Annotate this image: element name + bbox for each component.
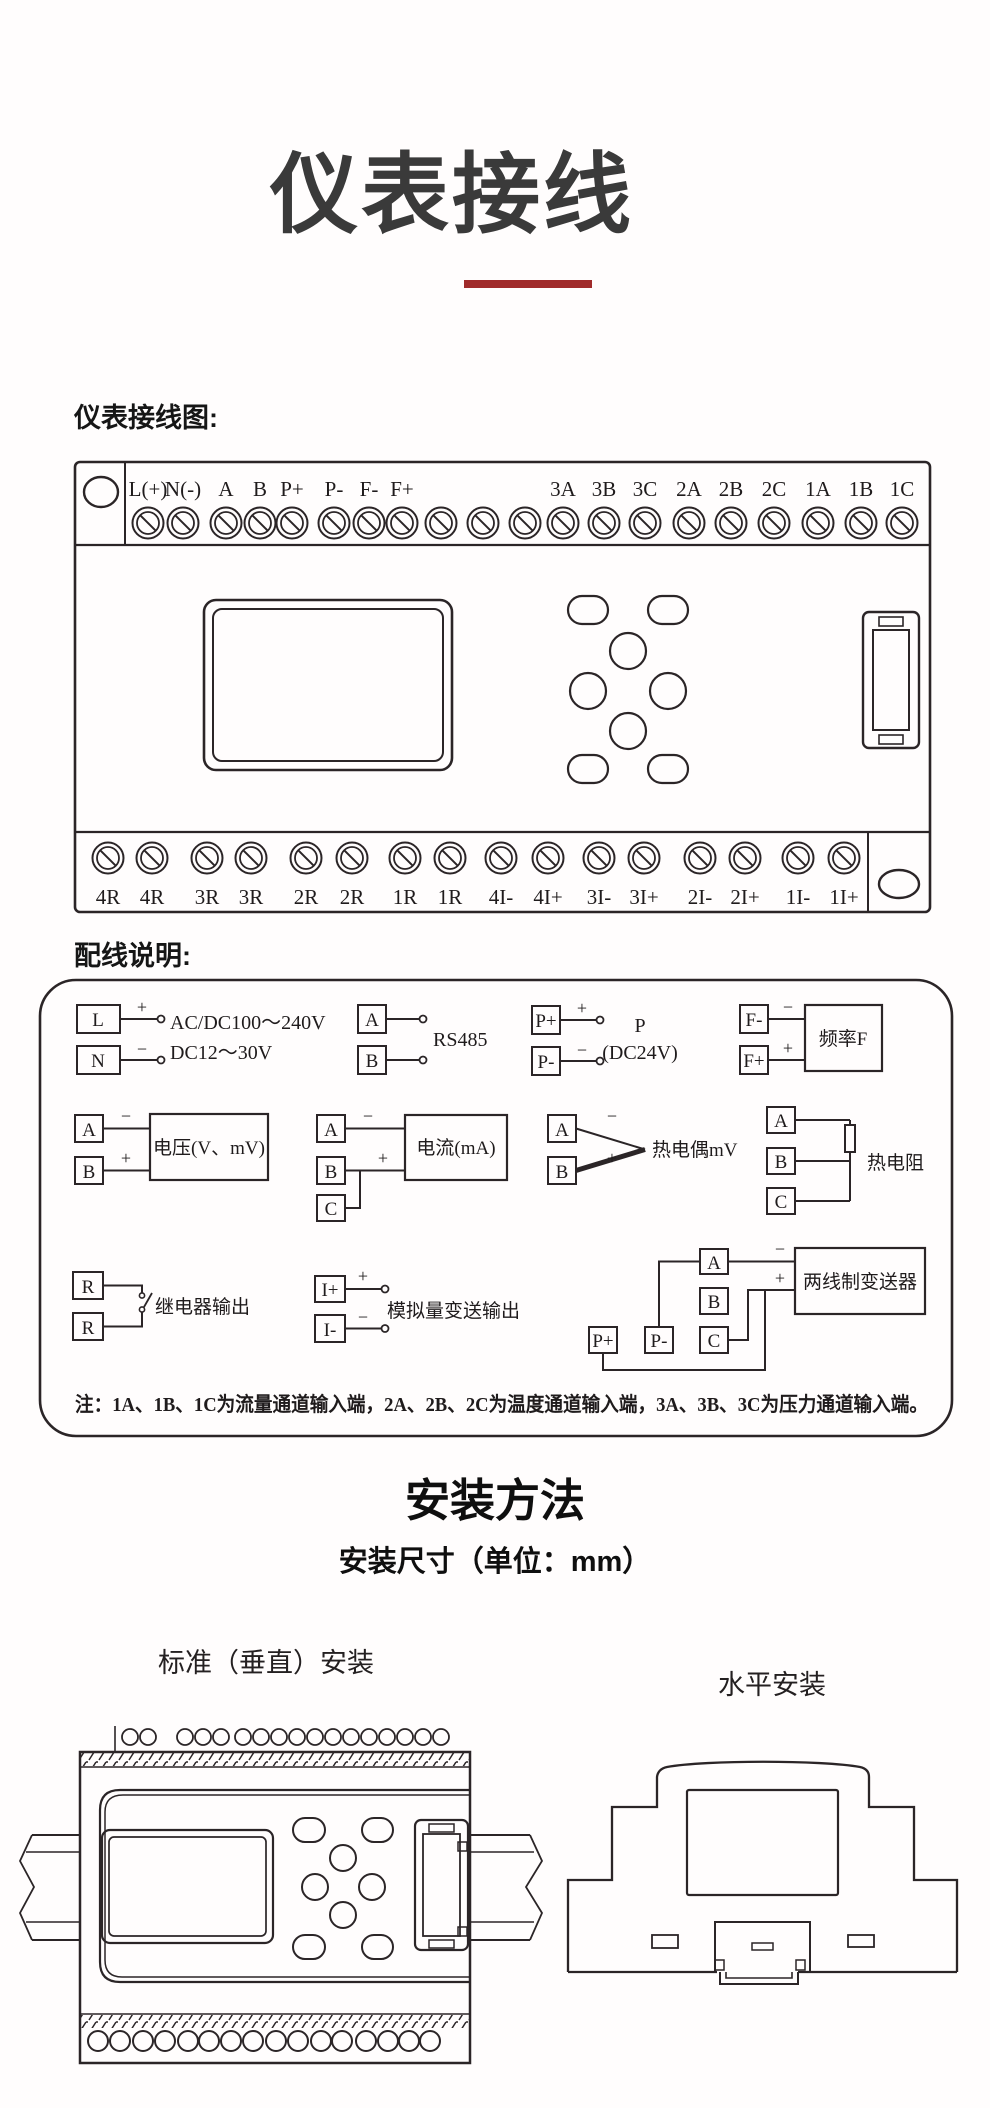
terminal-hole bbox=[133, 2031, 153, 2051]
minus-sign: − bbox=[783, 997, 793, 1017]
installation-subtitle: 安装尺寸（单位：mm） bbox=[0, 1538, 990, 1580]
wiring-instructions-panel: L N + − AC/DC100～240V DC12～30V A B RS485… bbox=[36, 976, 958, 1444]
terminal-box-label: A bbox=[707, 1253, 721, 1274]
screw-terminal bbox=[548, 508, 579, 539]
terminal-label: 4I- bbox=[489, 885, 514, 909]
terminal-box-label: C bbox=[775, 1192, 788, 1213]
screw-terminal bbox=[846, 508, 877, 539]
terminal-hole bbox=[253, 1729, 269, 1745]
terminal-box-label: B bbox=[83, 1162, 96, 1183]
terminal-hole bbox=[88, 2031, 108, 2051]
screw-terminal bbox=[803, 508, 834, 539]
red-divider bbox=[464, 280, 592, 288]
vent-strip-bottom bbox=[81, 2015, 469, 2028]
top-terminal-holes bbox=[122, 1729, 449, 1745]
horizontal-install-drawing bbox=[560, 1755, 970, 1995]
screw-terminal bbox=[211, 508, 242, 539]
terminal-box-label: P- bbox=[538, 1052, 555, 1073]
plus-sign: + bbox=[121, 1148, 131, 1168]
key-up bbox=[610, 633, 646, 669]
vertical-install-label: 标准（垂直）安装 bbox=[158, 1641, 374, 1680]
terminal-hole bbox=[122, 1729, 138, 1745]
terminal-label: F- bbox=[360, 477, 379, 501]
rail-break-symbol bbox=[20, 1835, 34, 1940]
terminal-box-label: A bbox=[365, 1010, 379, 1031]
key-left bbox=[570, 673, 606, 709]
screw-terminal bbox=[435, 843, 466, 874]
terminal-hole bbox=[177, 1729, 193, 1745]
terminal-hole bbox=[288, 2031, 308, 2051]
rail-break-symbol bbox=[526, 1835, 542, 1940]
screw-terminal bbox=[236, 843, 267, 874]
screw-terminal bbox=[390, 843, 421, 874]
terminal-hole bbox=[199, 2031, 219, 2051]
terminal-box-label: B bbox=[708, 1292, 721, 1313]
rs485-wiring-diagram: A B RS485 bbox=[358, 1005, 487, 1074]
screw-terminal bbox=[319, 508, 350, 539]
minus-sign: − bbox=[577, 1040, 587, 1060]
terminal-hole bbox=[155, 2031, 175, 2051]
terminal-hole bbox=[289, 1729, 305, 1745]
side-connector bbox=[415, 1820, 468, 1950]
screw-terminal bbox=[337, 843, 368, 874]
terminal-label: P- bbox=[325, 477, 344, 501]
sensor-supply-wiring-diagram: P+ P- + − P (DC24V) bbox=[532, 998, 678, 1075]
terminal-box-label: C bbox=[325, 1199, 338, 1220]
terminal-label: F+ bbox=[390, 477, 414, 501]
side-connector bbox=[863, 612, 919, 748]
screw-terminal bbox=[887, 508, 918, 539]
diagram-caption: P bbox=[634, 1015, 645, 1037]
plus-sign: + bbox=[775, 1268, 785, 1288]
screw-terminal bbox=[192, 843, 223, 874]
screw-terminal bbox=[589, 508, 620, 539]
bottom-terminal-holes bbox=[88, 2031, 440, 2051]
terminal-box-label: I- bbox=[324, 1320, 337, 1341]
terminal-hole bbox=[399, 2031, 419, 2051]
bottom-terminal-row: 4R4R3R3R2R2R1R1R4I-4I+3I-3I+2I-2I+1I-1I+ bbox=[93, 843, 860, 910]
screw-terminal bbox=[630, 508, 661, 539]
mounting-hole-bottom bbox=[879, 870, 919, 898]
terminal-box-label: B bbox=[325, 1162, 338, 1183]
terminal-label: 1R bbox=[393, 885, 418, 909]
screw-terminal bbox=[93, 843, 124, 874]
mounting-hole-top bbox=[84, 477, 118, 507]
terminal-hole bbox=[235, 1729, 251, 1745]
analog-output-wiring-diagram: I+ I- + − 模拟量变送输出 bbox=[315, 1266, 520, 1342]
diagram-caption: 电流(mA) bbox=[416, 1137, 495, 1159]
side-slot bbox=[652, 1935, 678, 1948]
diagram-caption: 热电偶mV bbox=[652, 1139, 738, 1161]
terminal-label: 3R bbox=[239, 885, 264, 909]
screw-terminal bbox=[674, 508, 705, 539]
terminal-hole bbox=[343, 1729, 359, 1745]
terminal-hole bbox=[266, 2031, 286, 2051]
terminal-hole bbox=[221, 2031, 241, 2051]
terminal-hole bbox=[379, 1729, 395, 1745]
terminal-hole bbox=[311, 2031, 331, 2051]
terminal-hole bbox=[325, 1729, 341, 1745]
terminal-box-label: N bbox=[91, 1051, 105, 1072]
power-wiring-diagram: L N + − AC/DC100～240V DC12～30V bbox=[77, 997, 326, 1074]
terminal-label: 1B bbox=[849, 477, 874, 501]
terminal-label: 1I+ bbox=[829, 885, 858, 909]
terminal-hole bbox=[420, 2031, 440, 2051]
terminal-box-label: B bbox=[366, 1051, 379, 1072]
terminal-hole bbox=[110, 2031, 130, 2051]
terminal-label: 3A bbox=[550, 477, 577, 501]
terminal-box-label: C bbox=[708, 1331, 721, 1352]
display-window bbox=[687, 1790, 838, 1895]
diagram-caption: 热电阻 bbox=[867, 1152, 924, 1174]
rtd-wiring-diagram: A B C 热电阻 bbox=[767, 1107, 924, 1214]
terminal-label: 2I+ bbox=[730, 885, 759, 909]
relay-wiring-diagram: R R 继电器输出 bbox=[73, 1272, 250, 1340]
din-rail-left bbox=[20, 1835, 80, 1940]
terminal-label: 1C bbox=[890, 477, 915, 501]
terminal-label: 3R bbox=[195, 885, 220, 909]
terminal-label: 4I+ bbox=[533, 885, 562, 909]
key-top-right bbox=[648, 596, 688, 624]
terminal-box-label: A bbox=[774, 1111, 788, 1132]
diagram-caption: RS485 bbox=[433, 1029, 487, 1051]
terminal-label: N(-) bbox=[165, 477, 201, 501]
terminal-hole bbox=[332, 2031, 352, 2051]
channel-note: 注：1A、1B、1C为流量通道输入端，2A、2B、2C为温度通道输入端，3A、3… bbox=[75, 1392, 928, 1416]
terminal-box-label: L bbox=[92, 1010, 104, 1031]
power-range-label: AC/DC100～240V bbox=[170, 1012, 326, 1034]
top-terminal-row: L(+)N(-)ABP+P-F-F+3A3B3C2A2B2C1A1B1C bbox=[129, 477, 918, 539]
terminal-box-label: P+ bbox=[592, 1331, 613, 1352]
device-profile-outline bbox=[568, 1762, 957, 1972]
terminal-hole bbox=[356, 2031, 376, 2051]
screw-terminal bbox=[829, 843, 860, 874]
terminal-box-label: F- bbox=[746, 1010, 763, 1031]
terminal-label: 2B bbox=[719, 477, 744, 501]
screw-terminal bbox=[759, 508, 790, 539]
minus-sign: − bbox=[121, 1106, 131, 1126]
terminal-box-label: P- bbox=[651, 1331, 668, 1352]
screw-terminal bbox=[685, 843, 716, 874]
terminal-block-diagram: L(+)N(-)ABP+P-F-F+3A3B3C2A2B2C1A1B1C 4R4… bbox=[72, 459, 932, 917]
thermocouple-wiring-diagram: A B − + 热电偶mV bbox=[548, 1106, 738, 1184]
plus-sign: + bbox=[607, 1148, 617, 1168]
terminal-box-label: A bbox=[324, 1120, 338, 1141]
terminal-box-label: I+ bbox=[321, 1280, 338, 1301]
screw-terminal bbox=[133, 508, 164, 539]
screw-terminal bbox=[354, 508, 385, 539]
minus-sign: − bbox=[358, 1307, 368, 1327]
terminal-label: P+ bbox=[280, 477, 304, 501]
terminal-hole bbox=[178, 2031, 198, 2051]
transmitter-wiring-diagram: P+ P- A B C − + 两线制变送器 bbox=[589, 1239, 925, 1370]
din-rail-clip bbox=[715, 1922, 810, 1984]
diagram-caption: 两线制变送器 bbox=[803, 1271, 917, 1293]
screw-terminal bbox=[387, 508, 418, 539]
minus-sign: − bbox=[137, 1039, 147, 1059]
key-bottom-left bbox=[568, 755, 608, 783]
screw-terminal bbox=[277, 508, 308, 539]
plus-sign: + bbox=[137, 997, 147, 1017]
terminal-label: 4R bbox=[96, 885, 121, 909]
diagram-caption: 频率F bbox=[819, 1028, 868, 1050]
terminal-box-label: B bbox=[556, 1162, 569, 1183]
terminal-label: L(+) bbox=[129, 477, 168, 501]
terminal-label: B bbox=[253, 477, 267, 501]
terminal-box-label: B bbox=[775, 1152, 788, 1173]
terminal-label: 2A bbox=[676, 477, 703, 501]
keypad bbox=[568, 596, 688, 783]
terminal-hole bbox=[195, 1729, 211, 1745]
screw-terminal bbox=[426, 508, 457, 539]
screw-terminal bbox=[486, 843, 517, 874]
diagram-caption: 电压(V、mV) bbox=[153, 1137, 265, 1159]
terminal-label: 3I+ bbox=[629, 885, 658, 909]
screw-terminal bbox=[291, 843, 322, 874]
minus-sign: − bbox=[775, 1239, 785, 1259]
terminal-box-label: A bbox=[82, 1120, 96, 1141]
wiring-section-label: 仪表接线图: bbox=[74, 396, 218, 435]
display-window bbox=[204, 600, 452, 770]
horizontal-install-label: 水平安装 bbox=[718, 1663, 826, 1702]
terminal-label: 2I- bbox=[688, 885, 713, 909]
terminal-label: 3B bbox=[592, 477, 617, 501]
terminal-hole bbox=[415, 1729, 431, 1745]
terminal-label: 1R bbox=[438, 885, 463, 909]
installation-title: 安装方法 bbox=[0, 1464, 990, 1529]
plus-sign: + bbox=[577, 998, 587, 1018]
display-window bbox=[102, 1830, 273, 1943]
screw-terminal bbox=[716, 508, 747, 539]
terminal-label: A bbox=[218, 477, 234, 501]
current-wiring-diagram: A B C − + 电流(mA) bbox=[317, 1106, 507, 1221]
terminal-box-label: R bbox=[82, 1277, 95, 1298]
screw-terminal bbox=[168, 508, 199, 539]
terminal-hole bbox=[378, 2031, 398, 2051]
terminal-hole bbox=[307, 1729, 323, 1745]
terminal-label: 3I- bbox=[587, 885, 612, 909]
resistor-symbol bbox=[845, 1125, 855, 1152]
key-bottom-right bbox=[648, 755, 688, 783]
diagram-caption: (DC24V) bbox=[602, 1042, 678, 1064]
instructions-section-label: 配线说明: bbox=[74, 934, 191, 973]
key-top-left bbox=[568, 596, 608, 624]
terminal-hole bbox=[361, 1729, 377, 1745]
terminal-hole bbox=[213, 1729, 229, 1745]
screw-terminal bbox=[468, 508, 499, 539]
side-slot bbox=[848, 1935, 874, 1947]
plus-sign: + bbox=[783, 1038, 793, 1058]
minus-sign: − bbox=[607, 1106, 617, 1126]
terminal-label: 4R bbox=[140, 885, 165, 909]
key-right bbox=[650, 673, 686, 709]
plus-sign: + bbox=[358, 1266, 368, 1286]
terminal-hole bbox=[243, 2031, 263, 2051]
terminal-hole bbox=[397, 1729, 413, 1745]
screw-terminal bbox=[629, 843, 660, 874]
terminal-label: 1I- bbox=[786, 885, 811, 909]
screw-terminal bbox=[245, 508, 276, 539]
screw-terminal bbox=[533, 843, 564, 874]
terminal-label: 3C bbox=[633, 477, 658, 501]
screw-terminal bbox=[584, 843, 615, 874]
minus-sign: − bbox=[363, 1106, 373, 1126]
power-range-label: DC12～30V bbox=[170, 1042, 273, 1064]
terminal-hole bbox=[433, 1729, 449, 1745]
page-title: 仪表接线 bbox=[270, 124, 634, 251]
screw-terminal bbox=[137, 843, 168, 874]
vent-strip-top bbox=[81, 1753, 469, 1766]
diagram-caption: 模拟量变送输出 bbox=[387, 1300, 520, 1322]
keypad bbox=[293, 1818, 393, 1959]
vertical-install-drawing bbox=[18, 1722, 548, 2068]
screw-terminal bbox=[783, 843, 814, 874]
terminal-box-label: F+ bbox=[743, 1051, 764, 1072]
terminal-label: 2R bbox=[294, 885, 319, 909]
voltage-wiring-diagram: A B − + 电压(V、mV) bbox=[75, 1106, 268, 1184]
terminal-label: 2C bbox=[762, 477, 787, 501]
screw-terminal bbox=[730, 843, 761, 874]
terminal-box-label: A bbox=[555, 1120, 569, 1141]
terminal-label: 1A bbox=[805, 477, 832, 501]
terminal-box-label: R bbox=[82, 1318, 95, 1339]
plus-sign: + bbox=[378, 1148, 388, 1168]
terminal-hole bbox=[140, 1729, 156, 1745]
key-down bbox=[610, 713, 646, 749]
terminal-hole bbox=[271, 1729, 287, 1745]
diagram-caption: 继电器输出 bbox=[155, 1296, 250, 1318]
frequency-wiring-diagram: F- F+ − + 频率F bbox=[740, 997, 882, 1074]
terminal-box-label: P+ bbox=[535, 1011, 556, 1032]
screw-terminal bbox=[510, 508, 541, 539]
terminal-label: 2R bbox=[340, 885, 365, 909]
